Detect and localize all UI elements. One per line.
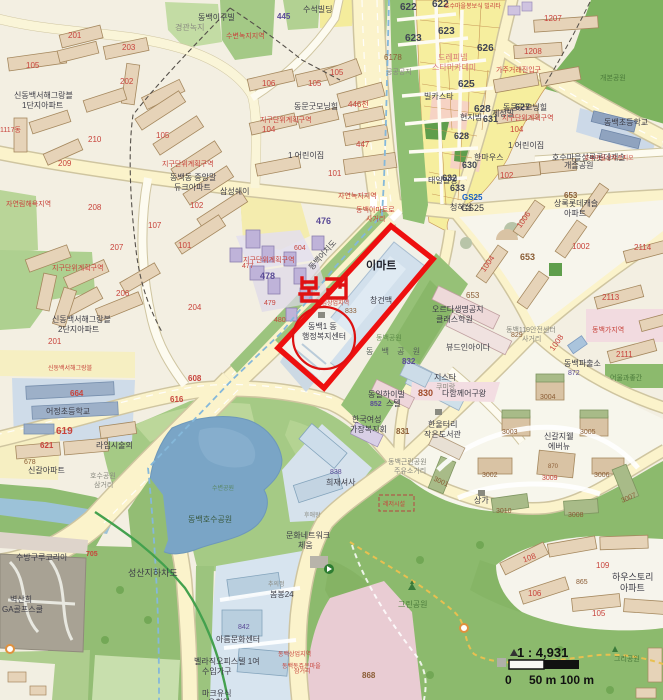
svg-text:동백가지역: 동백가지역 [592, 325, 624, 334]
svg-text:678: 678 [24, 459, 36, 466]
svg-text:842: 842 [238, 624, 250, 631]
svg-text:사거리: 사거리 [366, 214, 385, 223]
svg-text:447: 447 [356, 140, 370, 149]
svg-text:지구단위계획구역: 지구단위계획구역 [52, 263, 104, 272]
svg-text:653: 653 [564, 191, 578, 200]
svg-text:GA골프스쿨: GA골프스쿨 [2, 605, 43, 614]
svg-text:레저시설: 레저시설 [383, 500, 405, 508]
svg-text:208: 208 [88, 203, 102, 212]
svg-text:삼성쉐이: 삼성쉐이 [220, 186, 249, 196]
svg-text:100 m: 100 m [560, 673, 594, 687]
svg-text:626: 626 [477, 43, 494, 54]
svg-text:2113: 2113 [602, 293, 620, 302]
svg-text:653: 653 [466, 291, 480, 300]
svg-text:추의정: 추의정 [268, 580, 285, 588]
svg-text:203: 203 [122, 43, 136, 52]
svg-text:2114: 2114 [634, 243, 652, 252]
svg-text:빌카스타: 빌카스타 [424, 91, 454, 101]
svg-text:832: 832 [402, 357, 416, 366]
svg-text:스타미카데미: 스타미카데미 [432, 63, 476, 72]
svg-text:3002: 3002 [482, 472, 498, 479]
svg-text:3008: 3008 [568, 512, 584, 519]
svg-text:653: 653 [520, 252, 535, 262]
svg-text:제성빌: 제성빌 [492, 108, 514, 118]
svg-text:삼거리: 삼거리 [94, 480, 113, 489]
svg-text:동백이구빌: 동백이구빌 [198, 12, 235, 22]
svg-text:동일하이빌: 동일하이빌 [368, 389, 405, 399]
svg-text:하우스토리: 하우스토리 [612, 572, 653, 582]
svg-text:619: 619 [56, 426, 73, 437]
svg-text:201: 201 [68, 31, 82, 40]
svg-text:지구단위계획구역: 지구단위계획구역 [260, 115, 312, 124]
svg-text:동백119안전센터: 동백119안전센터 [506, 325, 556, 334]
svg-text:2단지아파트: 2단지아파트 [58, 324, 99, 334]
svg-text:833: 833 [345, 308, 357, 315]
svg-text:622: 622 [400, 2, 417, 13]
svg-text:창건맥: 창건맥 [370, 295, 392, 305]
svg-text:477: 477 [242, 263, 254, 270]
svg-text:듀크아파트: 듀크아파트 [174, 182, 211, 192]
svg-text:라임시술의: 라임시술의 [96, 440, 133, 450]
svg-text:830: 830 [418, 388, 433, 398]
svg-text:852: 852 [370, 401, 382, 408]
svg-text:다함께어구왕: 다함께어구왕 [442, 388, 487, 398]
svg-text:지구단위계획구역: 지구단위계획구역 [162, 159, 214, 168]
svg-text:105: 105 [26, 61, 40, 70]
svg-text:뷰드인아이다: 뷰드인아이다 [446, 342, 491, 352]
svg-text:1 : 4,931: 1 : 4,931 [517, 645, 568, 660]
svg-text:동백상업지역: 동백상업지역 [278, 650, 311, 658]
svg-text:2111: 2111 [616, 350, 633, 359]
svg-text:신갈아파트: 신갈아파트 [28, 465, 65, 475]
svg-text:107: 107 [148, 221, 162, 230]
svg-text:동백1 동: 동백1 동 [308, 321, 337, 331]
svg-text:207: 207 [110, 243, 124, 252]
svg-text:104: 104 [262, 125, 276, 134]
svg-text:수석빌딩: 수석빌딩 [303, 4, 332, 14]
svg-text:3006: 3006 [594, 472, 610, 479]
svg-text:621: 621 [40, 441, 54, 450]
svg-text:102: 102 [500, 171, 514, 180]
svg-text:신동백서해그랑블: 신동백서해그랑블 [52, 314, 111, 324]
svg-text:후애왕: 후애왕 [304, 511, 321, 519]
svg-text:628: 628 [454, 131, 469, 141]
svg-text:627: 627 [515, 102, 530, 112]
svg-text:106: 106 [262, 79, 276, 88]
svg-text:623: 623 [438, 26, 455, 37]
svg-text:지스타: 지스타 [434, 373, 457, 382]
svg-text:이마트: 이마트 [366, 258, 396, 272]
svg-text:신갈지웰: 신갈지웰 [544, 431, 573, 441]
svg-text:아파트: 아파트 [620, 583, 645, 593]
svg-text:831: 831 [396, 427, 410, 436]
svg-text:한마우스: 한마우스 [474, 153, 503, 162]
svg-text:동 백 공 원: 동 백 공 원 [366, 346, 423, 356]
svg-text:상가: 상가 [474, 495, 489, 505]
svg-text:838: 838 [330, 469, 342, 476]
svg-text:3009: 3009 [542, 475, 558, 482]
svg-text:자연림해욕지역: 자연림해욕지역 [6, 199, 51, 208]
svg-text:1002: 1002 [572, 242, 590, 251]
svg-text:동백동 중앙말: 동백동 중앙말 [170, 172, 217, 182]
svg-text:865: 865 [576, 579, 588, 586]
svg-text:청하섬: 청하섬 [450, 202, 472, 212]
svg-text:102: 102 [190, 201, 204, 210]
svg-text:3003: 3003 [502, 429, 518, 436]
svg-text:벽산희: 벽산희 [10, 594, 32, 604]
svg-text:105: 105 [330, 68, 344, 77]
svg-text:105: 105 [592, 609, 606, 618]
svg-text:호수마을상푸르지오: 호수마을상푸르지오 [584, 154, 634, 162]
svg-text:수방구루코리아: 수방구루코리아 [16, 552, 68, 562]
svg-text:109: 109 [596, 561, 610, 570]
svg-text:수입가구: 수입가구 [202, 667, 231, 676]
svg-text:행정복지센터: 행정복지센터 [302, 331, 346, 341]
svg-text:아파트: 아파트 [564, 208, 586, 218]
svg-text:6178: 6178 [384, 53, 402, 62]
svg-text:수변녹지지역: 수변녹지지역 [226, 31, 265, 40]
svg-text:신동백서해그랑블: 신동백서해그랑블 [48, 364, 93, 372]
svg-text:어울과좋간: 어울과좋간 [610, 373, 643, 382]
svg-text:수변공원: 수변공원 [212, 484, 234, 492]
svg-text:705: 705 [86, 551, 98, 558]
svg-text:개본공원: 개본공원 [600, 73, 626, 82]
svg-text:202: 202 [120, 77, 134, 86]
svg-text:616: 616 [170, 395, 184, 404]
svg-text:어정초등학교: 어정초등학교 [46, 406, 90, 416]
svg-text:101: 101 [328, 169, 342, 178]
svg-text:에버뉴: 에버뉴 [548, 441, 570, 451]
svg-text:3005: 3005 [580, 429, 596, 436]
svg-text:201: 201 [48, 337, 62, 346]
svg-text:445: 445 [277, 12, 291, 21]
svg-text:동백공원: 동백공원 [376, 333, 402, 342]
svg-text:664: 664 [70, 389, 84, 398]
svg-text:동백초등학교: 동백초등학교 [604, 117, 648, 127]
svg-text:623: 623 [405, 33, 422, 44]
svg-text:동백이마트로: 동백이마트로 [356, 205, 395, 214]
svg-text:105: 105 [156, 131, 170, 140]
svg-text:성산지하차도: 성산지하차도 [128, 567, 178, 578]
svg-text:1207: 1207 [544, 14, 562, 23]
svg-text:625: 625 [458, 79, 475, 90]
svg-text:현지빔: 현지빔 [460, 112, 482, 122]
svg-text:가장복지회: 가장복지회 [350, 424, 387, 434]
svg-text:동백근린공원: 동백근린공원 [388, 457, 427, 466]
svg-text:스텔: 스텔 [386, 399, 401, 408]
svg-text:벨라직오피스텔 1여: 벨라직오피스텔 1여 [194, 656, 260, 666]
svg-text:633: 633 [450, 183, 465, 193]
svg-text:동문굿모닝힐: 동문굿모닝힐 [294, 101, 338, 111]
svg-text:삼거리: 삼거리 [294, 667, 311, 675]
svg-text:주유소거리: 주유소거리 [394, 466, 426, 475]
svg-text:210: 210 [88, 135, 102, 144]
svg-text:공공공지: 공공공지 [386, 67, 412, 76]
svg-text:446천: 446천 [348, 99, 369, 109]
svg-text:드레피넴: 드레피넴 [438, 52, 467, 62]
svg-text:사거리: 사거리 [522, 334, 541, 343]
svg-text:3004: 3004 [540, 394, 556, 401]
svg-text:봄봉24: 봄봉24 [270, 590, 294, 599]
svg-text:문화네트워크: 문화네트워크 [286, 531, 330, 540]
svg-text:그리공원: 그리공원 [614, 654, 640, 663]
svg-text:476: 476 [316, 216, 331, 226]
svg-text:아름문화센터: 아름문화센터 [216, 634, 260, 644]
svg-text:50 m: 50 m [529, 673, 556, 687]
svg-text:오르다생명공지: 오르다생명공지 [432, 304, 484, 314]
svg-text:경관녹지: 경관녹지 [175, 22, 204, 32]
svg-text:동백호수공원: 동백호수공원 [188, 514, 232, 524]
svg-text:105: 105 [308, 79, 322, 88]
svg-text:작은도서관: 작은도서관 [424, 429, 461, 439]
svg-text:희재셔사: 희재셔사 [326, 477, 356, 487]
svg-text:한국여성: 한국여성 [352, 414, 381, 424]
svg-text:호수마을봉보식 빌리타: 호수마을봉보식 빌리타 [444, 2, 501, 10]
svg-text:GS25: GS25 [462, 193, 483, 202]
svg-text:478: 478 [260, 271, 275, 281]
svg-text:630: 630 [462, 160, 477, 170]
svg-text:0: 0 [505, 673, 512, 687]
svg-text:209: 209 [58, 159, 72, 168]
svg-text:479: 479 [264, 300, 276, 307]
svg-text:마크유식: 마크유식 [202, 689, 231, 698]
svg-text:그린공원: 그린공원 [398, 599, 427, 609]
svg-text:480: 480 [274, 317, 286, 324]
svg-text:872: 872 [568, 370, 580, 377]
svg-text:104: 104 [510, 125, 524, 134]
svg-text:동백파출소: 동백파출소 [564, 358, 601, 368]
svg-text:870: 870 [548, 464, 559, 470]
svg-text:1단지아파트: 1단지아파트 [22, 100, 63, 110]
svg-text:608: 608 [188, 374, 202, 383]
svg-text:1 어린이집: 1 어린이집 [288, 150, 324, 160]
svg-text:자연녹지지역: 자연녹지지역 [338, 191, 377, 200]
svg-text:868: 868 [362, 671, 376, 680]
svg-text:604: 604 [294, 245, 306, 252]
svg-text:체움: 체움 [298, 540, 313, 550]
svg-text:가주거래진입구: 가주거래진입구 [496, 65, 542, 74]
svg-text:106: 106 [528, 589, 542, 598]
svg-text:632: 632 [442, 173, 457, 183]
svg-text:1117동: 1117동 [0, 126, 22, 134]
svg-text:1208: 1208 [524, 47, 542, 56]
svg-text:101: 101 [178, 241, 192, 250]
svg-text:한울터리: 한울터리 [428, 420, 457, 429]
svg-text:206: 206 [116, 289, 130, 298]
svg-text:호수공원: 호수공원 [90, 471, 116, 480]
svg-text:신동백서해그랑블: 신동백서해그랑블 [14, 90, 73, 100]
svg-text:클래스학원: 클래스학원 [436, 314, 473, 324]
svg-text:3010: 3010 [496, 508, 512, 515]
svg-text:1 어린이집: 1 어린이집 [508, 140, 544, 150]
svg-text:204: 204 [188, 303, 202, 312]
